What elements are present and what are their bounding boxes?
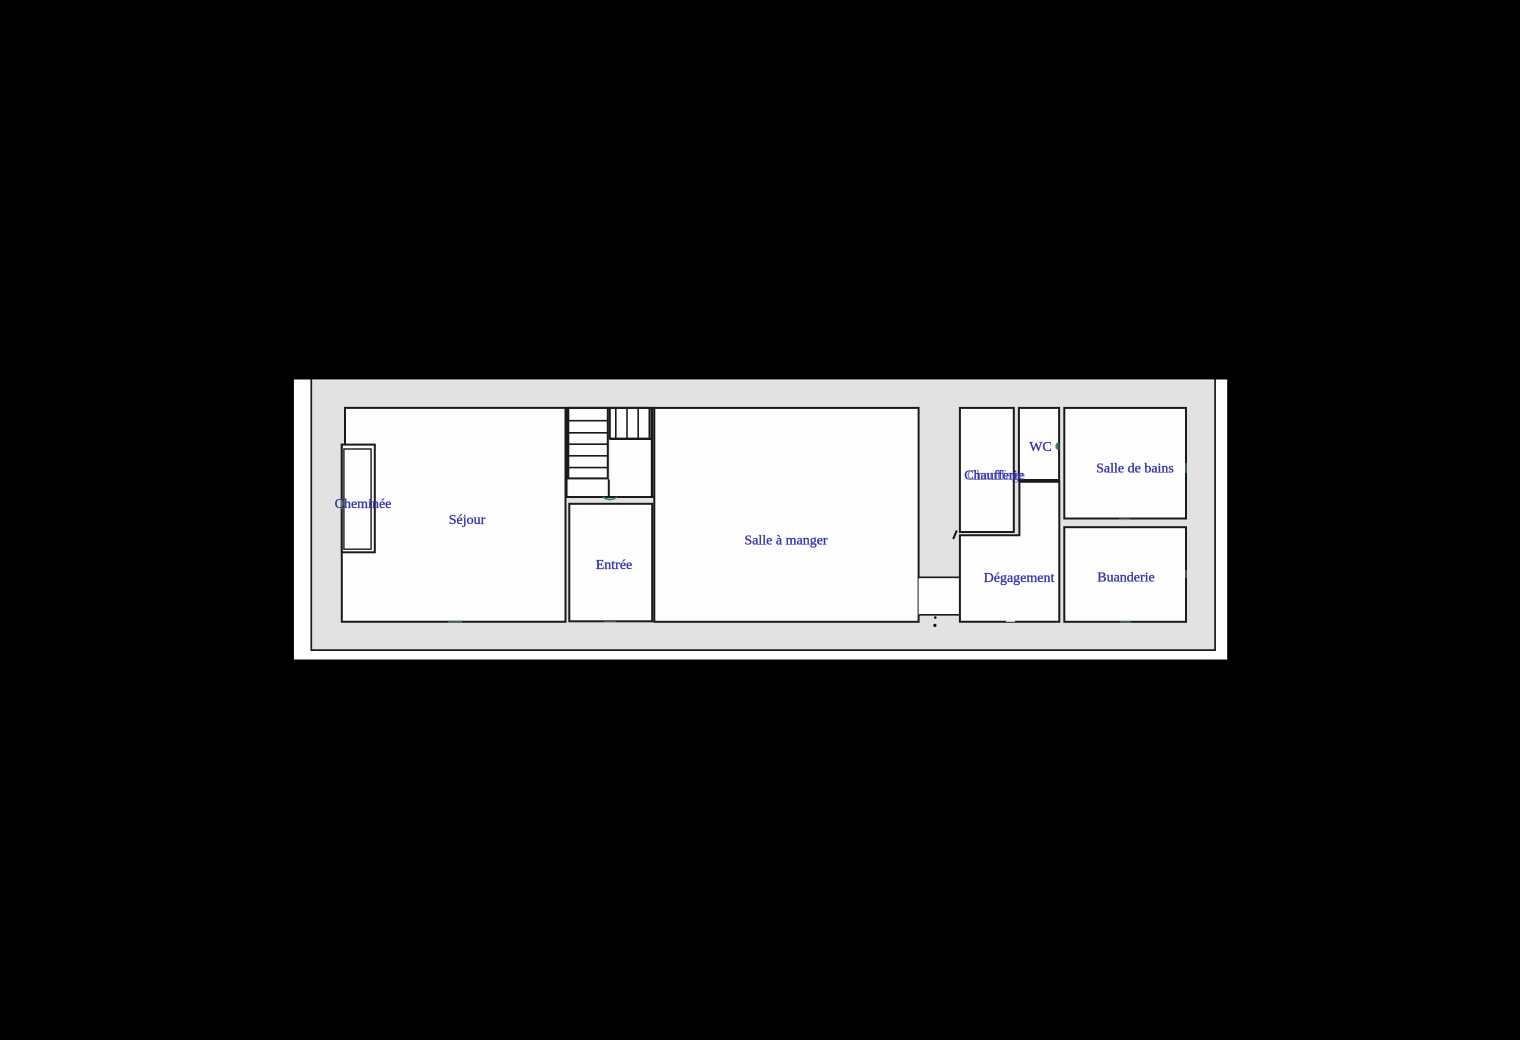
- svg-text:Séjour: Séjour: [449, 513, 486, 528]
- svg-text:Cheminée: Cheminée: [335, 497, 392, 512]
- svg-text:Salle de bains: Salle de bains: [1096, 462, 1174, 477]
- svg-text:Salle à manger: Salle à manger: [744, 534, 828, 549]
- svg-text:Dégagement: Dégagement: [984, 571, 1055, 586]
- svg-text:Chauffage: Chauffage: [967, 469, 1025, 484]
- svg-text:Buanderie: Buanderie: [1097, 571, 1155, 586]
- svg-text:Entrée: Entrée: [596, 558, 633, 573]
- svg-text:WC: WC: [1029, 440, 1052, 455]
